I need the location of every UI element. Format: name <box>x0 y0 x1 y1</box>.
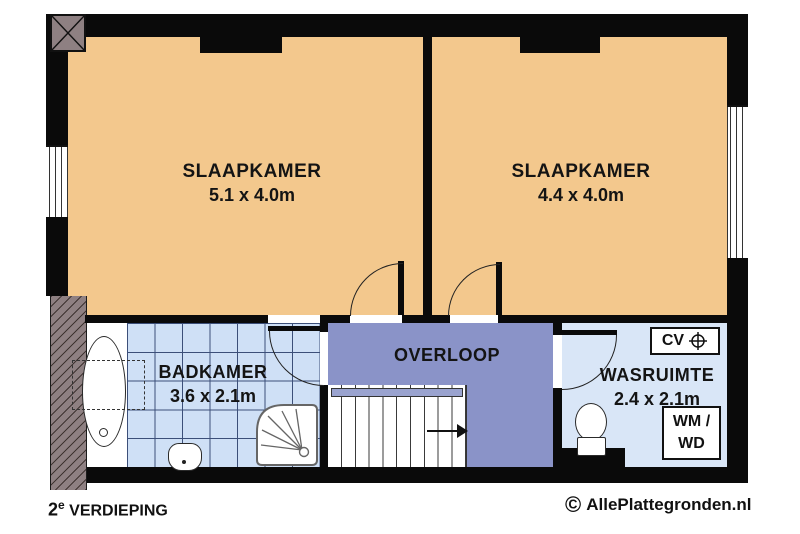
wall-bathroom-landing-lower <box>320 385 328 467</box>
laundry-name: WASRUIMTE <box>600 364 715 387</box>
landing-name: OVERLOOP <box>394 344 500 367</box>
wall-bottom <box>68 467 748 483</box>
chimney-block <box>50 14 86 52</box>
chimney-breast-right <box>520 37 600 53</box>
floor-suffix: e <box>58 498 65 512</box>
window-left <box>46 145 68 221</box>
wall-right-upper <box>727 37 748 105</box>
wall-laundry-top <box>553 315 748 323</box>
laundry-dimensions: 2.4 x 2.1m <box>600 387 715 411</box>
bedroom-left-dimensions: 5.1 x 4.0m <box>182 183 321 207</box>
bathroom-name: BADKAMER <box>159 361 268 384</box>
floor-plan: CV WM / WD SLAAPKAMER 5.1 x 4.0m SLAAPKA… <box>0 0 800 534</box>
bathtub-dashed-outline <box>72 360 145 410</box>
washer-dryer-box: WM / WD <box>662 406 721 460</box>
cv-boiler-box: CV <box>650 327 720 355</box>
washer-dryer-label-line2: WD <box>678 433 705 455</box>
toilet-tank <box>577 437 606 456</box>
watermark: © AllePlattegronden.nl <box>565 495 752 515</box>
wall-right-lower <box>727 258 748 483</box>
wall-left-lower <box>46 217 68 296</box>
stair-direction-arrow <box>427 430 460 432</box>
wall-landing-top-left <box>328 315 350 323</box>
chimney-icon <box>50 14 86 52</box>
window-right <box>727 105 748 262</box>
stair-direction-arrow-head <box>457 424 468 438</box>
wall-left-upper <box>46 37 68 145</box>
bedroom-left-name: SLAAPKAMER <box>182 160 321 183</box>
bathtub-drain <box>99 428 108 437</box>
sink-drain-dot <box>182 460 186 464</box>
stair-handrail <box>331 388 463 397</box>
bedroom-right-dimensions: 4.4 x 4.0m <box>511 183 650 207</box>
bedroom-right-label: SLAAPKAMER 4.4 x 4.0m <box>511 160 650 207</box>
wall-landing-laundry-stub <box>553 315 562 335</box>
floor-number: 2 <box>48 499 58 519</box>
laundry-label: WASRUIMTE 2.4 x 2.1m <box>600 364 715 411</box>
floor-text: VERDIEPING <box>69 502 168 519</box>
staircase <box>328 385 467 467</box>
bathroom-sink <box>168 443 202 471</box>
wall-bedroom-divider <box>423 37 432 322</box>
wall-landing-top-right <box>498 315 553 323</box>
floor-title: 2e VERDIEPING <box>48 498 168 520</box>
wall-top <box>46 14 748 37</box>
bathroom-dimensions: 3.6 x 2.1m <box>159 384 268 408</box>
landing-label: OVERLOOP <box>394 344 500 367</box>
wall-bathroom-top <box>85 315 268 323</box>
watermark-text: AllePlattegronden.nl <box>586 495 751 515</box>
bedroom-right-name: SLAAPKAMER <box>511 160 650 183</box>
chimney-breast-left <box>200 37 282 53</box>
cv-valve-icon <box>688 331 708 351</box>
copyright-icon: © <box>565 495 581 515</box>
shower-icon <box>256 404 318 466</box>
washer-dryer-label-line1: WM / <box>673 411 710 433</box>
bedroom-left-label: SLAAPKAMER 5.1 x 4.0m <box>182 160 321 207</box>
wall-landing-laundry-lower <box>553 388 562 467</box>
bathroom-label: BADKAMER 3.6 x 2.1m <box>159 361 268 408</box>
wall-landing-top-center <box>402 315 450 323</box>
shower-tray <box>256 404 318 466</box>
cv-label: CV <box>662 332 684 350</box>
